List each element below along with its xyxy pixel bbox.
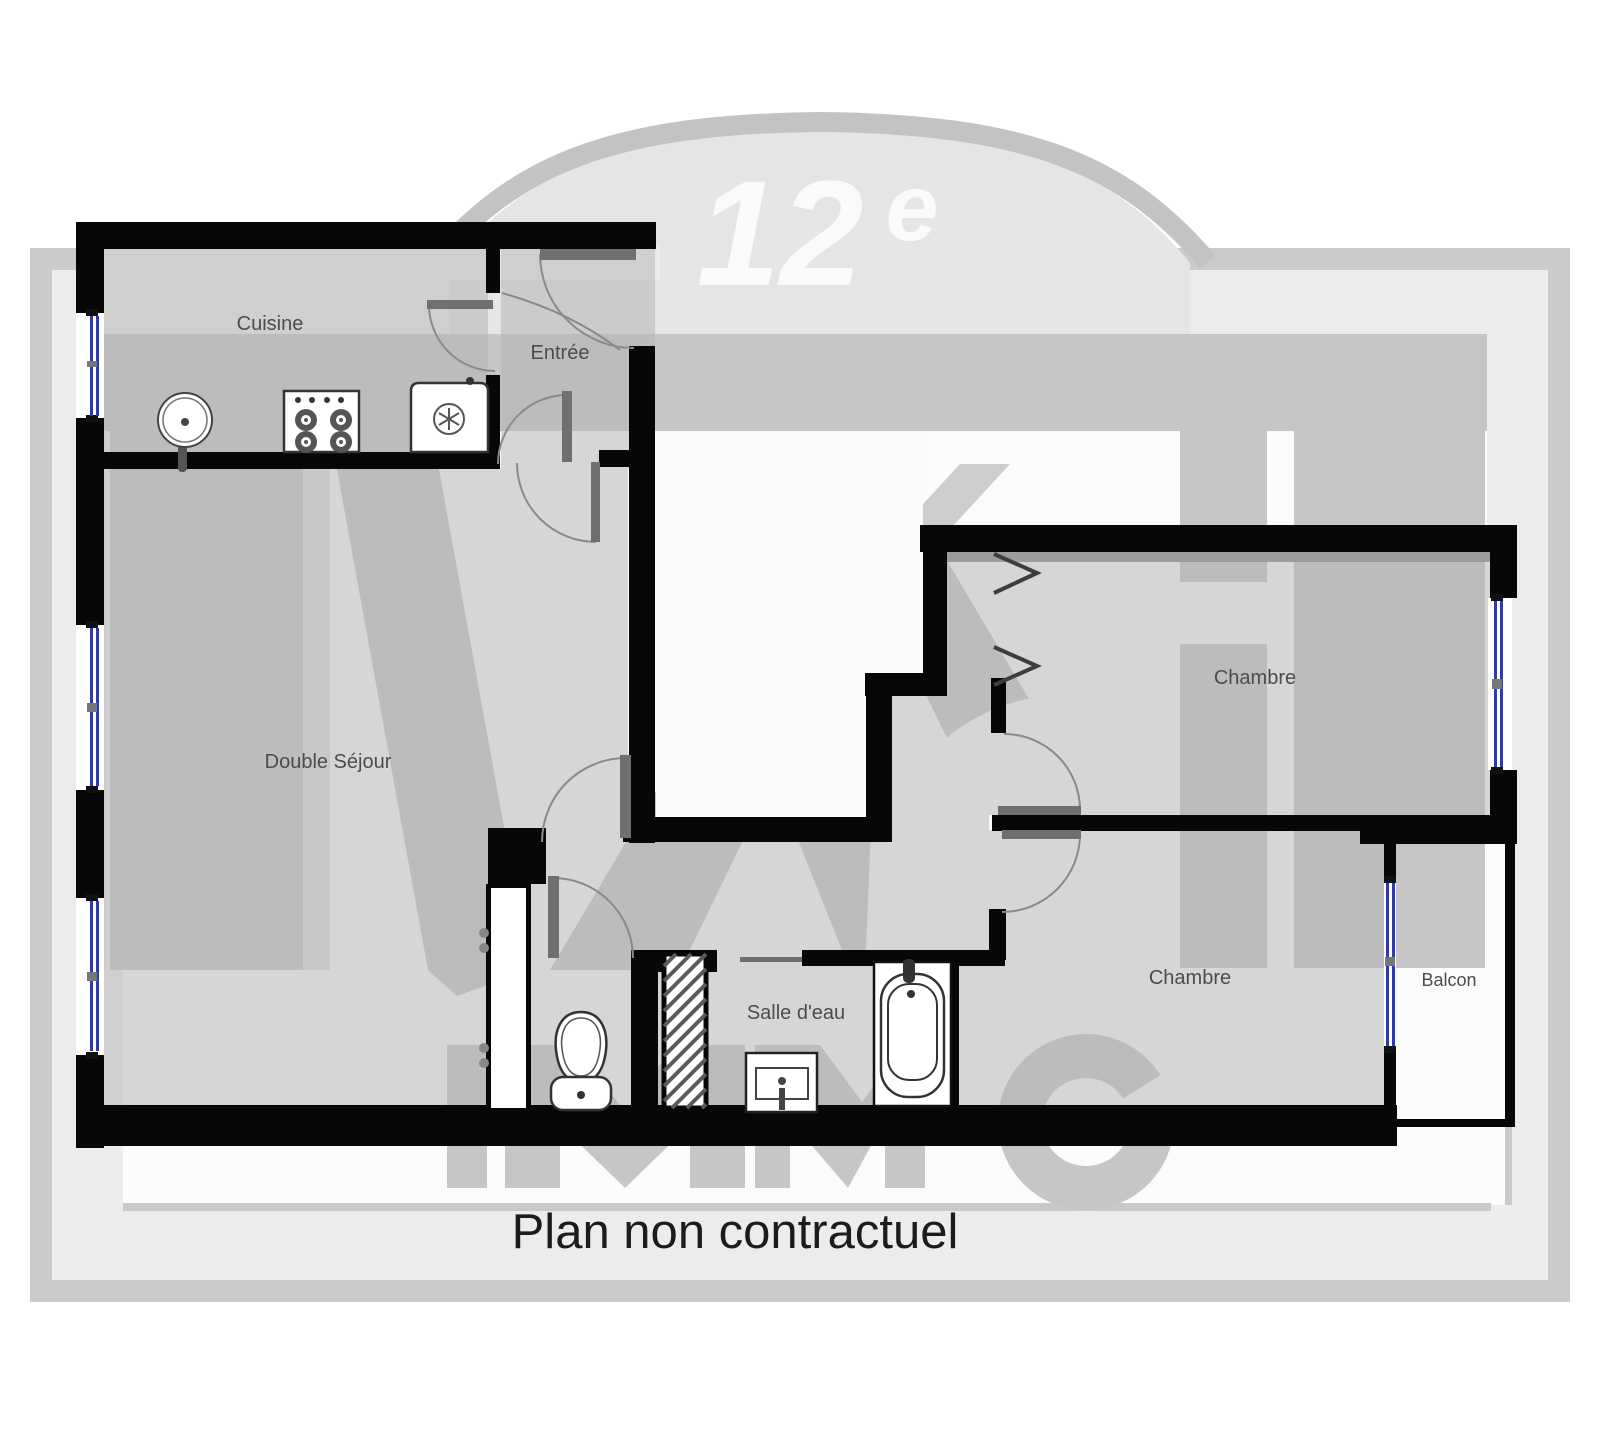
svg-text:Cuisine: Cuisine (237, 313, 304, 335)
svg-text:Salle d'eau: Salle d'eau (747, 1002, 845, 1024)
svg-text:e: e (886, 155, 939, 261)
svg-text:Balcon: Balcon (1421, 970, 1476, 990)
svg-text:Chambre: Chambre (1149, 967, 1231, 989)
svg-text:Entrée: Entrée (531, 342, 590, 364)
svg-text:Chambre: Chambre (1214, 667, 1296, 689)
svg-text:Plan non contractuel: Plan non contractuel (512, 1205, 959, 1259)
svg-text:12: 12 (697, 149, 864, 317)
svg-text:Double Séjour: Double Séjour (265, 751, 392, 773)
